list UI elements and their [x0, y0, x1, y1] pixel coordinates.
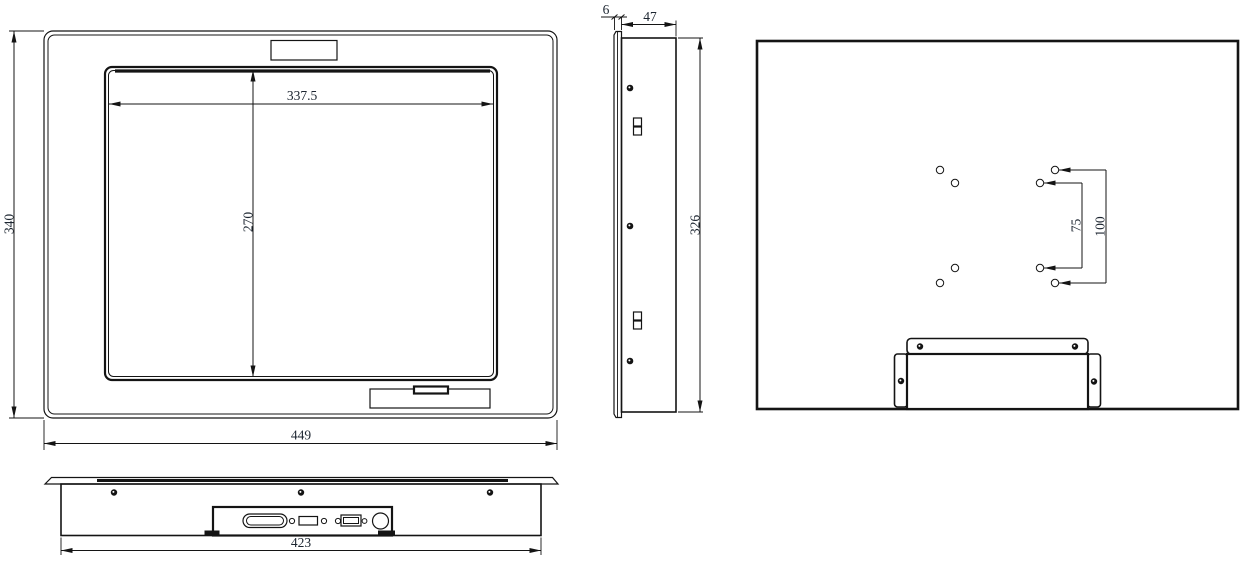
mount-bracket-top-bar: [907, 339, 1088, 355]
jack-screw-hole: [321, 518, 326, 523]
rear-view: 75 100: [757, 41, 1238, 409]
dim-display-height: 270: [241, 70, 256, 377]
screen-area: [105, 67, 497, 380]
screw-icon: [627, 223, 634, 230]
vesa-hole: [951, 179, 958, 186]
screw-icon: [917, 343, 923, 349]
dim-body-height: 326: [678, 38, 703, 412]
logo-plate: [271, 41, 337, 61]
vent-holes: [634, 118, 642, 135]
dim-bezel-thickness: 6: [601, 2, 627, 30]
vesa-hole: [1036, 264, 1043, 271]
mount-tab: [378, 531, 395, 536]
screw-icon: [627, 358, 634, 365]
front-view: 337.5 270 340 449: [2, 31, 558, 450]
dim-display-height-label: 270: [241, 212, 256, 233]
screw-icon: [298, 489, 304, 495]
screw-icon: [487, 489, 493, 495]
vesa-hole: [951, 264, 958, 271]
dim-body-height-label: 326: [688, 215, 703, 236]
dim-bottom-width-label: 423: [291, 535, 312, 550]
dim-front-height: 340: [2, 31, 45, 418]
vesa-hole: [1051, 166, 1058, 173]
screen-inner-edge: [109, 71, 494, 377]
mount-bracket-box: [907, 354, 1088, 409]
dim-front-width: 449: [44, 420, 557, 450]
vesa-hole: [936, 279, 943, 286]
screw-icon: [1091, 378, 1097, 384]
dim-display-width-label: 337.5: [287, 88, 318, 103]
connector-panel: [213, 507, 392, 536]
screw-icon: [111, 489, 117, 495]
screw-icon: [1072, 343, 1078, 349]
dim-depth: 47: [622, 9, 677, 37]
dim-depth-label: 47: [643, 9, 657, 24]
vesa-hole: [1036, 179, 1043, 186]
jack-screw-hole: [289, 518, 294, 523]
mount-tab: [205, 531, 220, 536]
bottom-view: 423: [45, 478, 558, 556]
power-jack-icon: [373, 513, 389, 529]
vesa-hole: [1051, 279, 1058, 286]
dim-vesa-75: 75: [1044, 183, 1084, 268]
bottom-glass-edge: [97, 479, 508, 482]
dim-display-width: 337.5: [109, 88, 493, 104]
dim-vesa-100-label: 100: [1093, 216, 1108, 237]
technical-drawing-monitor: 337.5 270 340 449: [0, 0, 1258, 570]
jack-screw-hole: [362, 519, 367, 524]
screw-icon: [898, 378, 904, 384]
screw-icon: [627, 85, 634, 92]
dim-front-height-label: 340: [2, 214, 17, 235]
dim-front-width-label: 449: [291, 428, 312, 443]
dim-bezel-thickness-label: 6: [603, 2, 610, 17]
vesa-hole: [936, 166, 943, 173]
vent-holes: [634, 312, 642, 329]
drawing-svg: 337.5 270 340 449: [0, 0, 1258, 570]
jack-screw-hole: [335, 518, 340, 523]
dim-vesa-75-label: 75: [1069, 219, 1084, 233]
dim-bottom-width: 423: [61, 535, 541, 555]
side-view: 6 47 326: [601, 2, 703, 418]
osd-panel-tab: [414, 387, 448, 394]
mount-bracket: [895, 339, 1101, 410]
